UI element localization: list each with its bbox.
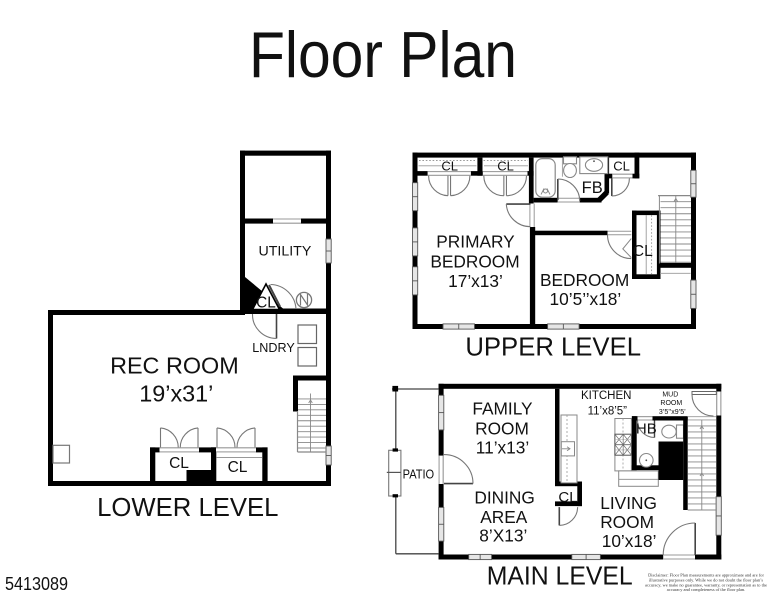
svg-text:CL: CL	[228, 459, 248, 476]
svg-text:10’x18’: 10’x18’	[602, 531, 657, 551]
svg-text:Floor Plan: Floor Plan	[249, 19, 517, 91]
svg-text:CL: CL	[613, 159, 630, 174]
svg-text:HB: HB	[636, 421, 657, 438]
svg-text:AREA: AREA	[480, 507, 528, 527]
svg-text:FAMILY: FAMILY	[472, 399, 533, 419]
svg-text:11’x8’5”: 11’x8’5”	[588, 405, 628, 417]
svg-text:CL: CL	[558, 489, 577, 506]
svg-text:PRIMARY: PRIMARY	[436, 231, 515, 251]
svg-text:10’5’’x18’: 10’5’’x18’	[550, 289, 622, 309]
svg-text:ROOM: ROOM	[600, 512, 654, 532]
svg-text:ROOM: ROOM	[660, 400, 682, 407]
svg-text:PATIO: PATIO	[403, 466, 435, 481]
svg-text:CL: CL	[441, 159, 458, 174]
svg-text:UPPER LEVEL: UPPER LEVEL	[465, 333, 641, 361]
svg-text:19’x31’: 19’x31’	[139, 381, 213, 407]
svg-text:LNDRY: LNDRY	[252, 341, 295, 355]
svg-text:BEDROOM: BEDROOM	[540, 270, 629, 290]
svg-text:accuracy and completeness of t: accuracy and completeness of the floor p…	[667, 587, 745, 592]
svg-text:REC ROOM: REC ROOM	[110, 353, 239, 379]
svg-text:17’x13’: 17’x13’	[448, 271, 503, 291]
svg-text:BEDROOM: BEDROOM	[430, 252, 519, 272]
svg-text:LIVING: LIVING	[600, 493, 657, 513]
svg-text:5413089: 5413089	[5, 574, 68, 594]
svg-text:CL: CL	[633, 243, 653, 260]
svg-text:8’X13’: 8’X13’	[479, 526, 527, 546]
svg-text:UTILITY: UTILITY	[258, 243, 311, 259]
svg-text:KITCHEN: KITCHEN	[581, 390, 631, 402]
svg-text:MUD: MUD	[662, 391, 678, 398]
svg-text:CL: CL	[169, 455, 189, 472]
svg-text:DINING: DINING	[474, 488, 534, 508]
svg-text:CL: CL	[497, 159, 514, 174]
svg-text:LOWER LEVEL: LOWER LEVEL	[97, 494, 278, 522]
svg-text:3’5’’x9’5’: 3’5’’x9’5’	[659, 409, 686, 416]
svg-text:MAIN LEVEL: MAIN LEVEL	[487, 563, 633, 591]
svg-text:11’x13’: 11’x13’	[476, 437, 529, 457]
svg-text:CL: CL	[256, 295, 276, 312]
svg-text:FB: FB	[582, 179, 603, 197]
svg-text:ROOM: ROOM	[475, 419, 529, 439]
